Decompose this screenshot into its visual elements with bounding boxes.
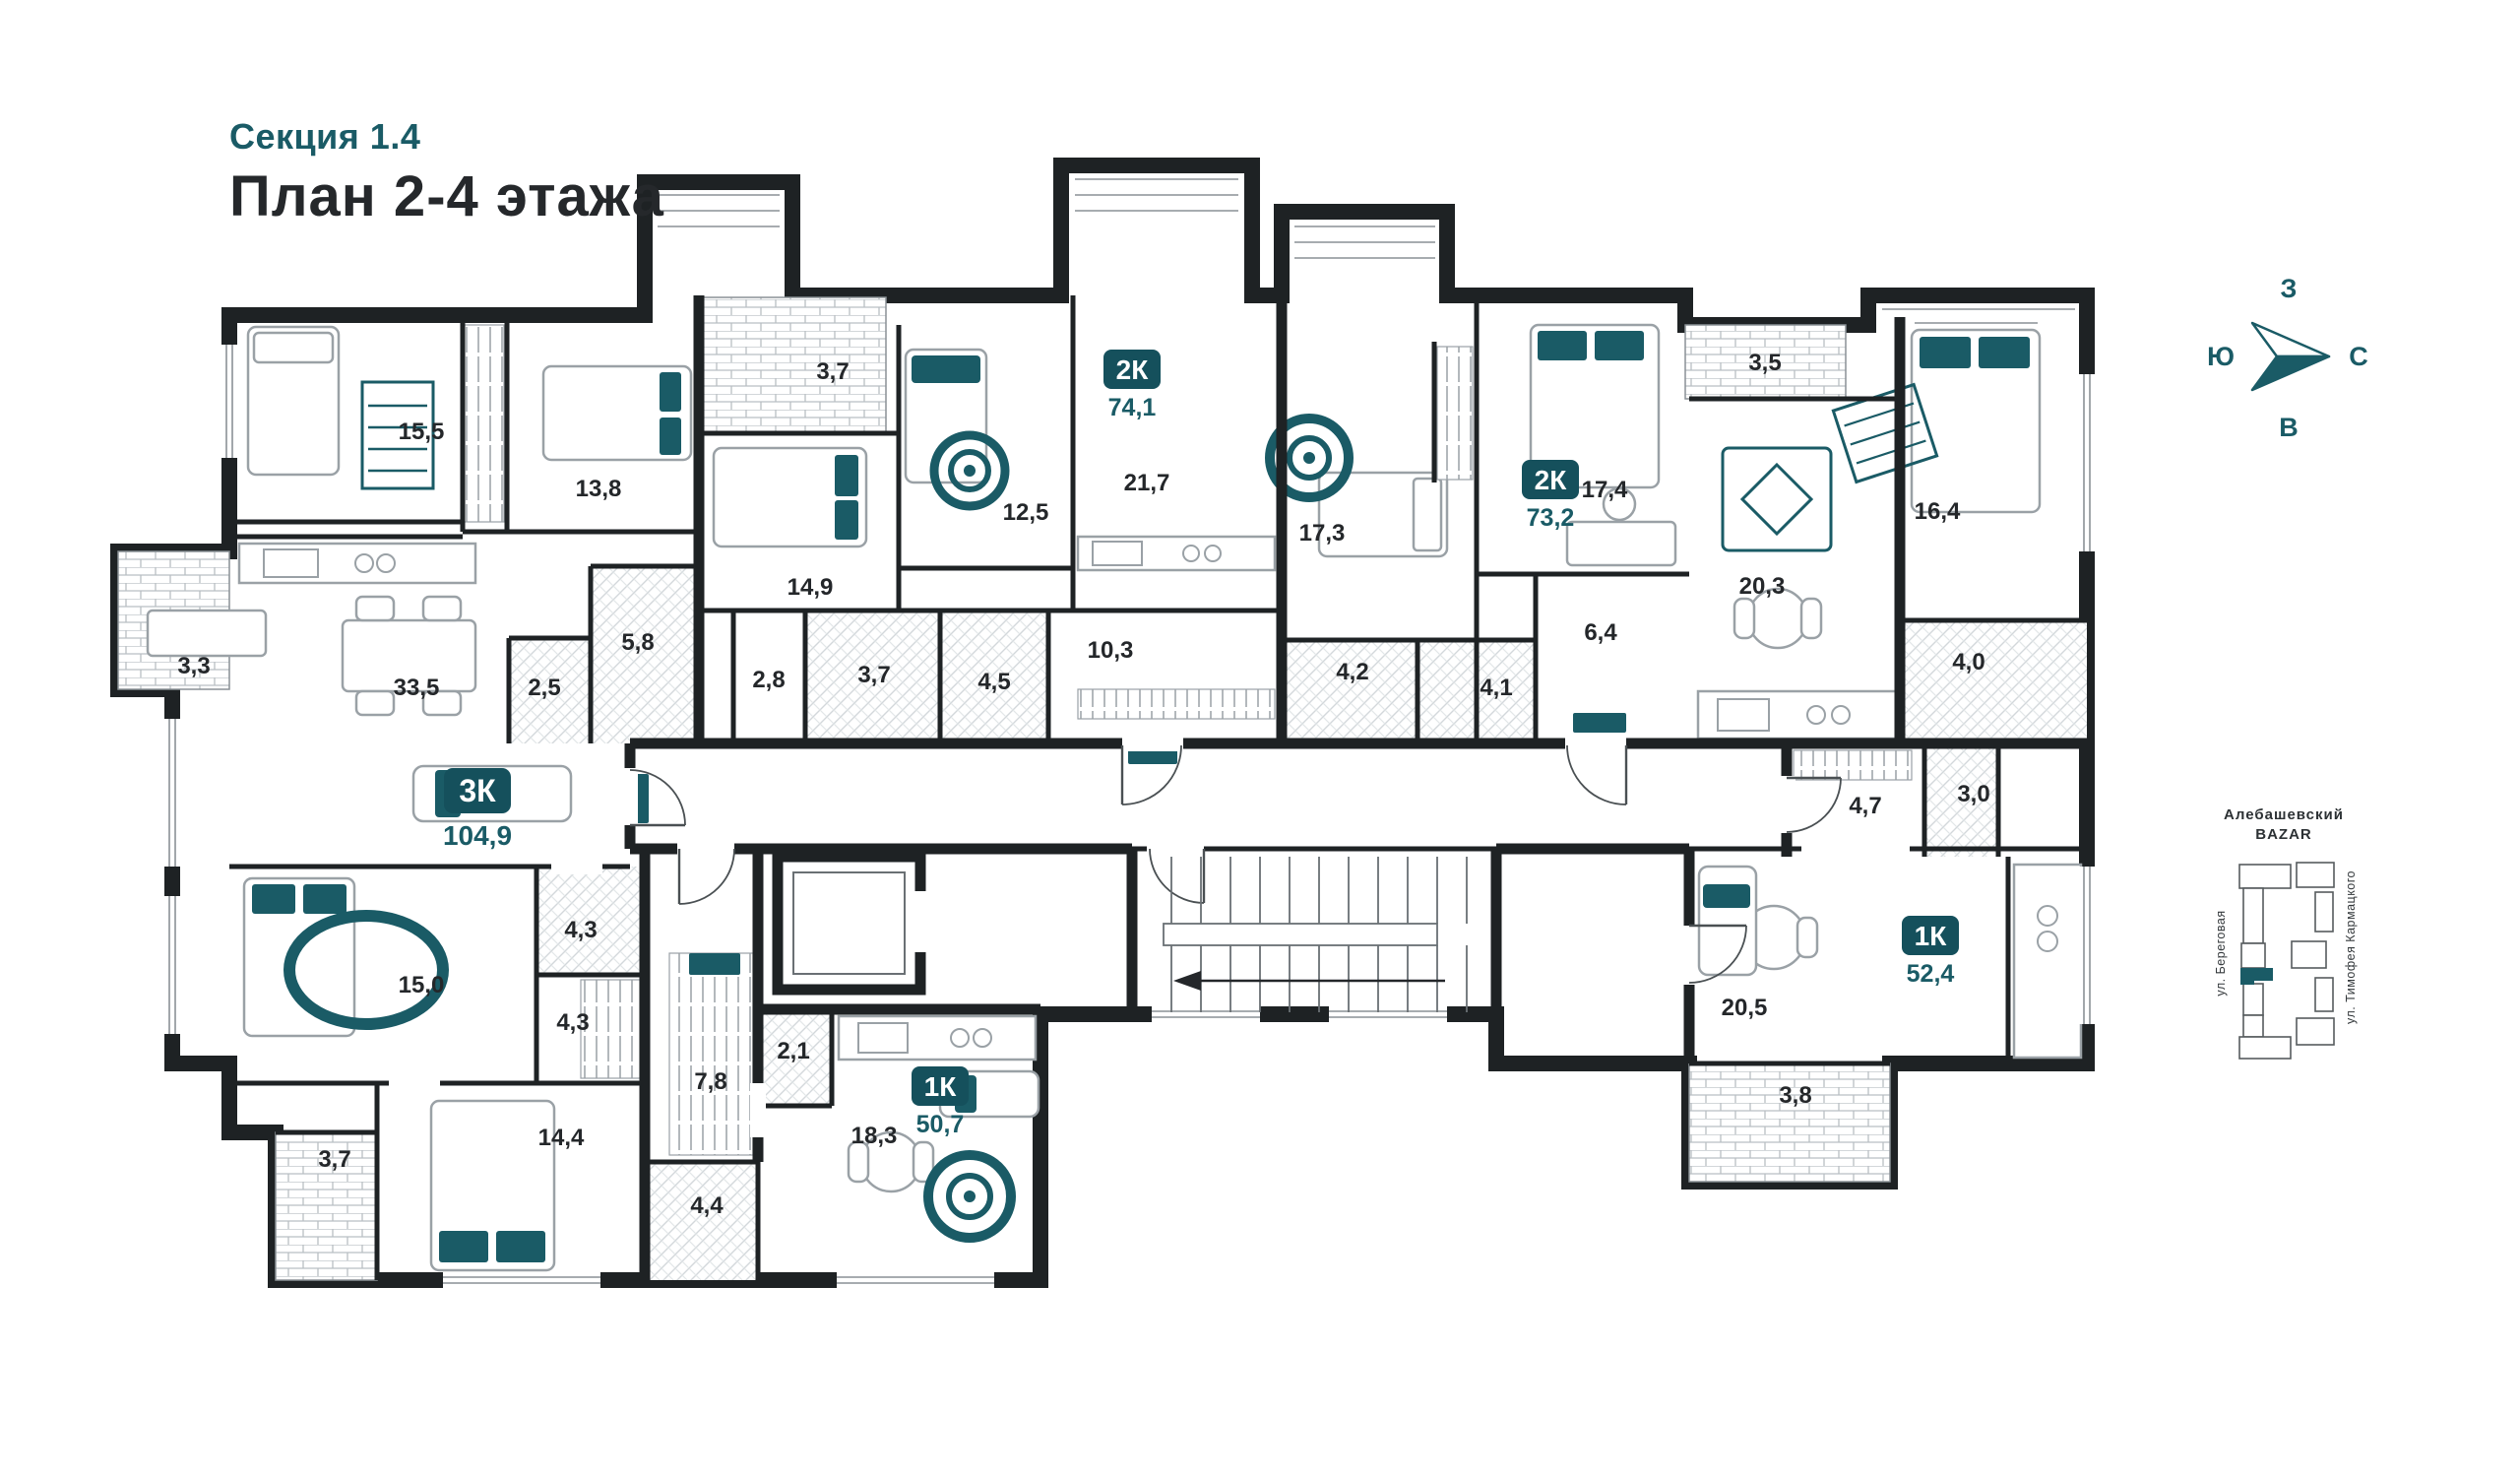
- room-area-label: 10,3: [1088, 637, 1134, 664]
- svg-text:2К: 2К: [1535, 465, 1568, 495]
- room-area-label: 18,3: [851, 1123, 898, 1149]
- room-area-label: 6,4: [1584, 619, 1617, 646]
- room-area-label: 4,5: [977, 669, 1010, 695]
- svg-text:1К: 1К: [1915, 921, 1948, 951]
- minimap-street-left: ул. Береговая: [2214, 910, 2228, 996]
- bed: [244, 878, 354, 1036]
- wardrobe-rail: [581, 980, 640, 1078]
- bed: [1912, 330, 2040, 512]
- window-bay: [658, 195, 780, 226]
- minimap-current-section: [2240, 968, 2273, 985]
- wardrobe-rail: [465, 325, 504, 522]
- section-title: Секция 1.4: [229, 116, 664, 158]
- bath-floor: [645, 1162, 758, 1280]
- door: [1122, 736, 1183, 804]
- room-area-label: 2,1: [777, 1038, 809, 1064]
- compass-west-label: З: [2281, 274, 2298, 303]
- room-area-label: 4,1: [1480, 675, 1512, 701]
- svg-text:74,1: 74,1: [1108, 394, 1157, 421]
- minimap-complex-name: Алебашевский: [2224, 806, 2344, 823]
- door: [1801, 841, 1910, 857]
- apartment-badge-1k-52: 1К 52,4: [1902, 916, 1959, 988]
- room-area-label: 7,8: [694, 1068, 726, 1095]
- room-area-label: 2,5: [528, 675, 560, 701]
- window: [1152, 1006, 1260, 1022]
- room-area-label: 2,8: [752, 667, 785, 693]
- wardrobe-rail: [669, 953, 753, 1155]
- doormat: [689, 953, 740, 975]
- room-area-label: 3,8: [1779, 1082, 1811, 1109]
- title-block: Секция 1.4 План 2-4 этажа: [229, 116, 664, 229]
- window-bay: [1294, 226, 1435, 258]
- window: [443, 1272, 600, 1288]
- rug-diamond: [1723, 448, 1831, 550]
- room-area-label: 4,4: [690, 1192, 724, 1219]
- room-area-label: 3,0: [1957, 781, 1989, 807]
- stair-landing: [1164, 924, 1437, 945]
- room-area-label: 15,0: [399, 972, 445, 998]
- stairwell: [1164, 857, 1467, 1012]
- door: [622, 768, 685, 825]
- room-area-label: 20,3: [1739, 573, 1786, 600]
- compass: З Ю С В: [2207, 274, 2368, 442]
- stair-direction-arrow: [1173, 971, 1445, 991]
- room-area-label: 21,7: [1124, 470, 1170, 496]
- minimap-street-right: ул. Тимофея Кармацкого: [2344, 870, 2358, 1024]
- room-area-label: 3,7: [857, 662, 890, 688]
- room-area-label: 3,5: [1748, 350, 1781, 376]
- wardrobe-rail: [1078, 689, 1275, 719]
- desk: [148, 611, 266, 656]
- minimap-buildings: [2239, 863, 2334, 1059]
- room-area-label: 14,4: [538, 1125, 585, 1151]
- svg-text:104,9: 104,9: [443, 820, 512, 851]
- bed: [543, 366, 691, 460]
- door: [750, 1083, 766, 1137]
- loggia-floor: [701, 297, 886, 433]
- room-area-label: 13,8: [576, 476, 622, 502]
- room-area-label: 3,3: [177, 653, 210, 679]
- room-area-label: 17,3: [1299, 520, 1346, 547]
- svg-text:3К: 3К: [459, 773, 496, 808]
- site-minimap: Алебашевский BAZAR ул. Береговая ул. Тим…: [2214, 806, 2358, 1059]
- room-area-label: 12,5: [1003, 499, 1049, 526]
- room-area-label: 4,3: [556, 1009, 589, 1036]
- room-area-label: 16,4: [1915, 498, 1961, 525]
- window: [1329, 1006, 1447, 1022]
- bed: [431, 1101, 554, 1270]
- bath-floor: [1282, 640, 1417, 743]
- door: [551, 859, 602, 874]
- room-area-label: 3,7: [816, 358, 849, 385]
- door: [1147, 841, 1204, 903]
- apartment-badge-2k-74: 2К 74,1: [1103, 350, 1161, 421]
- window: [221, 345, 237, 458]
- compass-east-label: В: [2279, 413, 2299, 442]
- room-area-label: 5,8: [621, 629, 654, 656]
- door: [1565, 736, 1626, 804]
- window-bay: [1075, 179, 1238, 211]
- compass-arrow-icon: [2252, 323, 2329, 390]
- bed: [906, 350, 986, 483]
- wardrobe-rail: [1437, 347, 1473, 480]
- window: [2079, 374, 2095, 551]
- page-title: План 2-4 этажа: [229, 163, 664, 229]
- room-area-label: 4,7: [1849, 793, 1881, 819]
- doormat: [1573, 713, 1626, 733]
- rug-round: [928, 1155, 1011, 1238]
- room-area-label: 33,5: [394, 675, 440, 701]
- room-area-label: 4,3: [564, 917, 597, 943]
- svg-text:50,7: 50,7: [916, 1111, 965, 1138]
- bed: [714, 448, 866, 547]
- sofa: [1699, 867, 1756, 975]
- svg-text:52,4: 52,4: [1907, 960, 1955, 988]
- window: [164, 719, 180, 867]
- door: [389, 1075, 440, 1091]
- door: [677, 841, 734, 904]
- svg-text:1К: 1К: [924, 1071, 958, 1102]
- window: [2079, 867, 2095, 1024]
- apartment-badge-1k-50: 1К 50,7: [912, 1066, 969, 1138]
- room-area-label: 3,7: [318, 1146, 350, 1173]
- elevator: [778, 857, 927, 990]
- floor-plan-page: Секция 1.4 План 2-4 этажа: [0, 0, 2520, 1480]
- room-area-label: 14,9: [787, 574, 834, 601]
- window: [837, 1272, 994, 1288]
- room-area-label: 4,0: [1952, 649, 1984, 676]
- room-area-label: 4,2: [1336, 659, 1368, 685]
- window-bay: [1882, 309, 2075, 323]
- svg-text:2К: 2К: [1116, 354, 1150, 385]
- bed: [248, 327, 339, 475]
- compass-south-label: Ю: [2207, 342, 2235, 371]
- balcony-floor: [1689, 1063, 1890, 1182]
- minimap-complex-name2: BAZAR: [2255, 826, 2312, 843]
- room-area-label: 20,5: [1722, 995, 1768, 1021]
- compass-north-label: С: [2349, 342, 2368, 371]
- door: [1780, 776, 1841, 833]
- svg-text:73,2: 73,2: [1527, 504, 1575, 532]
- wardrobe-rail: [1794, 750, 1912, 780]
- bath-floor: [1900, 620, 2087, 743]
- room-area-label: 15,5: [399, 418, 445, 445]
- window: [164, 896, 180, 1034]
- apartment-badge-3k: 3К 104,9: [443, 768, 512, 851]
- room-area-label: 17,4: [1582, 477, 1628, 503]
- apartment-badge-2k-73: 2К 73,2: [1522, 460, 1579, 532]
